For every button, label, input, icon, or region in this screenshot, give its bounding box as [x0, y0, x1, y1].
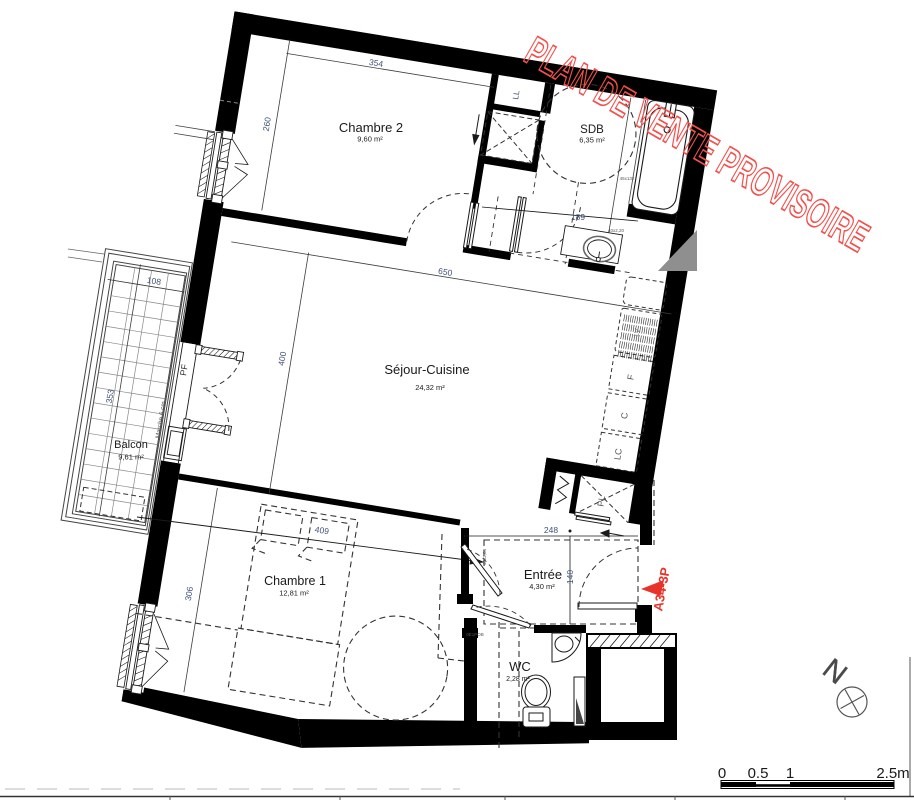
svg-text:2.5m: 2.5m	[876, 765, 909, 782]
svg-text:248: 248	[544, 525, 558, 535]
svg-text:2,28 m²: 2,28 m²	[506, 676, 530, 683]
svg-text:Entrée: Entrée	[524, 567, 562, 582]
svg-text:Séjour-Cuisine: Séjour-Cuisine	[384, 362, 469, 377]
svg-text:40x2,20: 40x2,20	[608, 228, 625, 233]
svg-text:Chambre 2: Chambre 2	[339, 120, 403, 135]
svg-text:45x132: 45x132	[620, 176, 635, 181]
svg-text:40x2,04: 40x2,04	[482, 548, 487, 565]
svg-text:4,30 m²: 4,30 m²	[529, 582, 555, 591]
svg-text:LV: LV	[633, 328, 641, 337]
svg-text:9,61 m²: 9,61 m²	[118, 453, 144, 462]
svg-text:9,60 m²: 9,60 m²	[357, 135, 383, 144]
svg-text:12,81 m²: 12,81 m²	[279, 589, 309, 598]
svg-text:140: 140	[565, 570, 575, 584]
svg-text:Balcon: Balcon	[114, 439, 148, 451]
svg-text:SDB: SDB	[580, 124, 604, 136]
svg-text:0: 0	[718, 765, 726, 782]
svg-text:1: 1	[786, 765, 794, 782]
svg-text:Chambre 1: Chambre 1	[264, 574, 326, 588]
svg-text:PL: PL	[595, 495, 607, 507]
svg-text:0.5: 0.5	[748, 765, 769, 782]
svg-text:6,35 m²: 6,35 m²	[579, 136, 605, 145]
svg-text:0E1POB: 0E1POB	[466, 632, 484, 637]
svg-text:LC: LC	[612, 447, 624, 460]
svg-text:WC: WC	[509, 659, 531, 674]
svg-text:189: 189	[571, 212, 585, 222]
svg-text:PF: PF	[178, 363, 190, 376]
svg-text:24,32 m²: 24,32 m²	[415, 383, 445, 392]
